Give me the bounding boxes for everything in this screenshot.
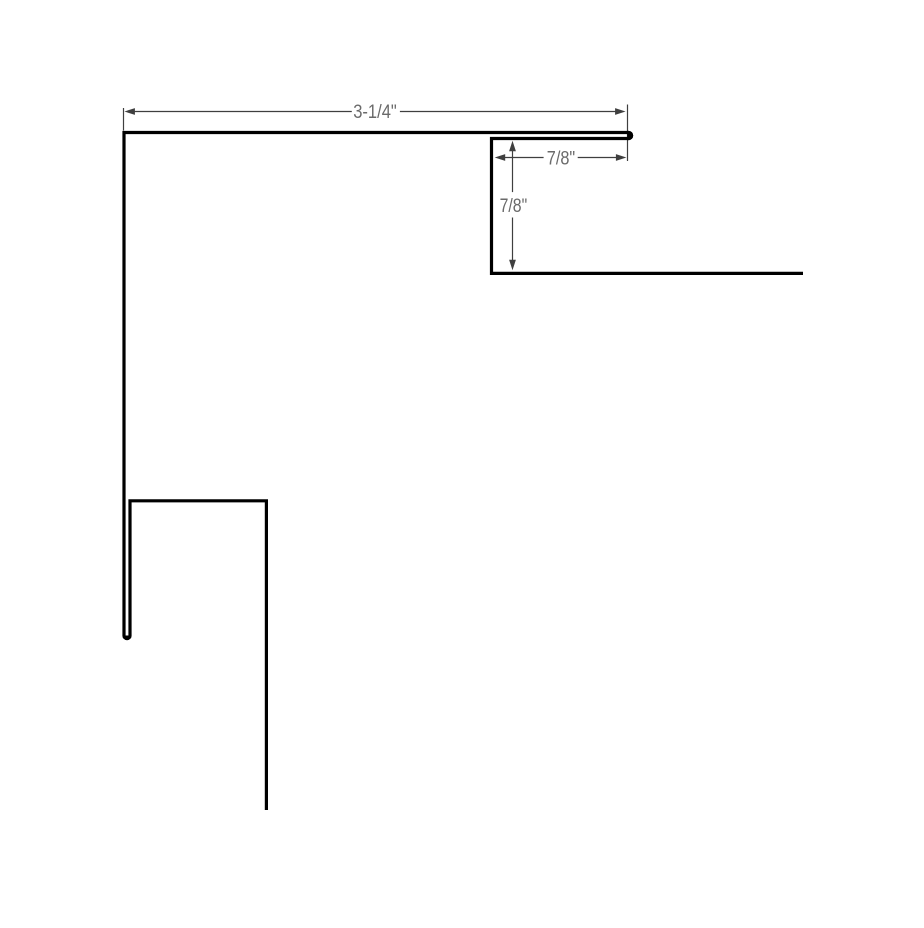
svg-text:7/8": 7/8": [500, 196, 528, 217]
svg-text:7/8": 7/8": [547, 148, 575, 169]
svg-text:3-1/4": 3-1/4": [353, 102, 397, 123]
